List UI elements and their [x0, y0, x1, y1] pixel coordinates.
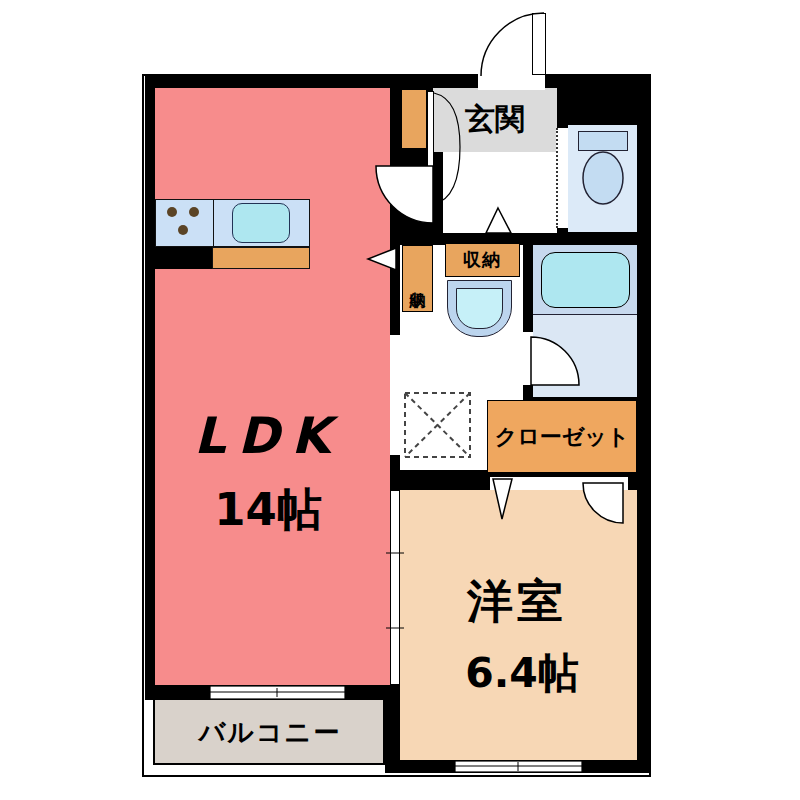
label-entrance: 玄関 [465, 103, 525, 135]
western-door-opening [490, 477, 628, 490]
label-ldk: LDK [194, 410, 342, 463]
washroom-door-opening [390, 335, 400, 455]
ldk-western-partition [390, 490, 400, 685]
label-western-room-size: 6.4帖 [465, 652, 579, 695]
label-closet: クローゼット [495, 425, 630, 448]
label-western-room: 洋室 [467, 577, 567, 625]
label-ldk-size: 14帖 [214, 486, 322, 533]
entrance-hall [443, 152, 557, 233]
shoe-cabinet-doors [427, 91, 434, 203]
wash-basin-bowl [456, 288, 503, 329]
kitchen-cabinet [212, 247, 310, 269]
entrance-door-opening [478, 74, 545, 90]
room-ldk [155, 88, 390, 685]
shoe-cabinet [401, 89, 427, 149]
floor-plan: 玄関 LDK 14帖 洋室 6.4帖 バルコニー クローゼット 収納 収納 [0, 0, 800, 800]
label-storage-horizontal: 収納 [463, 251, 501, 270]
bath-door-opening [518, 332, 533, 385]
entrance-door-leaf [532, 13, 546, 75]
storage-vertical-box [402, 245, 433, 312]
label-balcony: バルコニー [199, 719, 341, 746]
stove-section [156, 200, 214, 246]
bathtub [541, 252, 630, 308]
room-bath-floor [533, 315, 637, 397]
counter-end-wall [155, 247, 212, 269]
toilet-tank [578, 131, 628, 151]
kitchen-sink [232, 203, 290, 243]
toilet-door [556, 128, 568, 228]
